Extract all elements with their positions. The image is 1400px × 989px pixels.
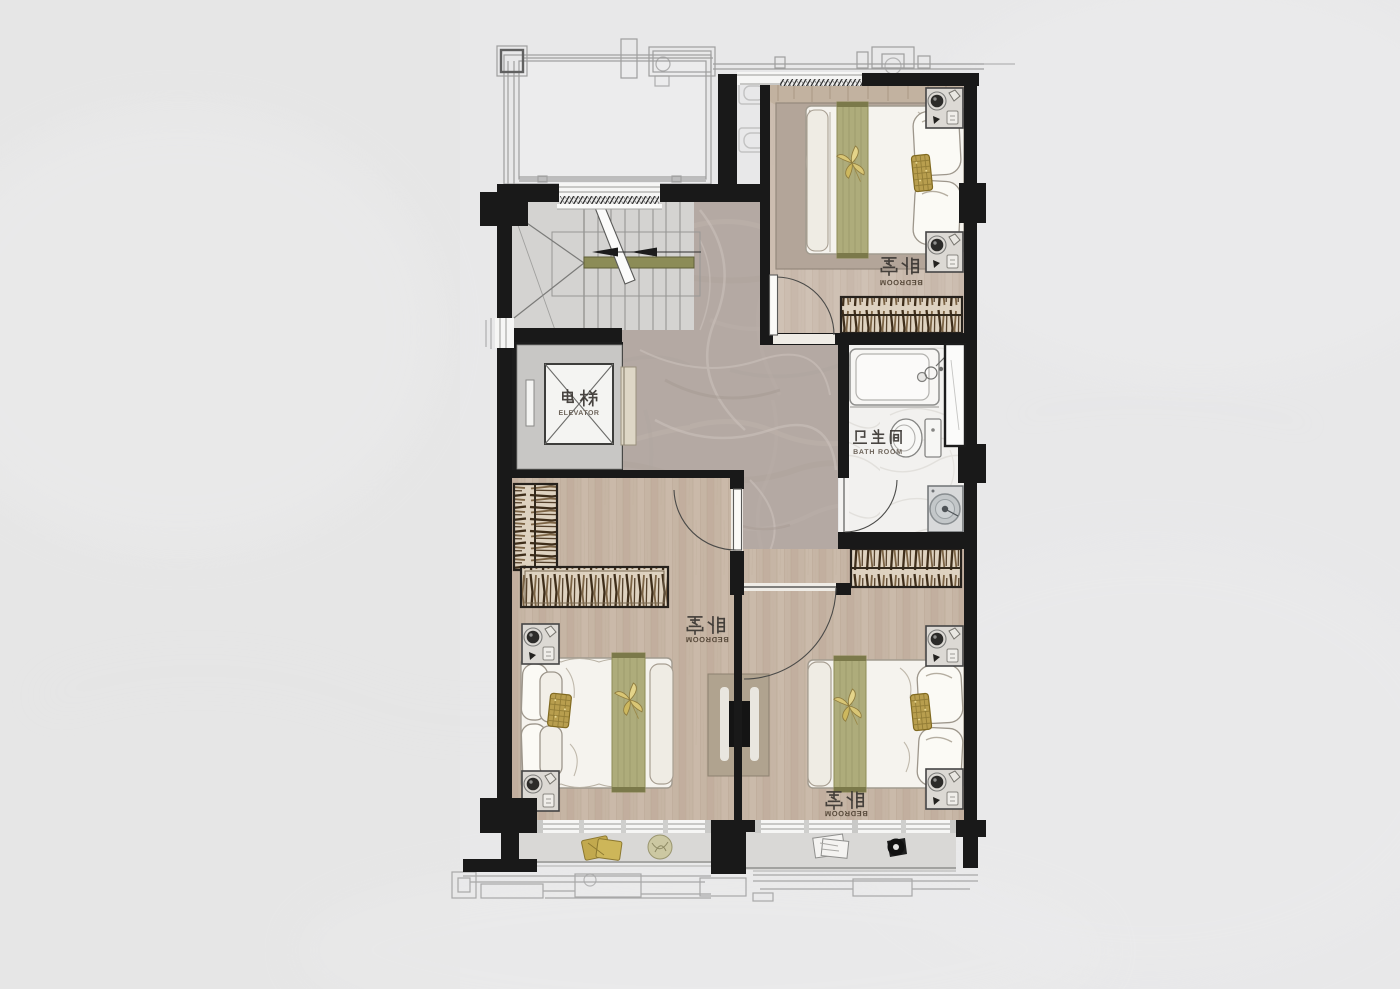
svg-text:BEDROOM: BEDROOM (879, 278, 922, 287)
svg-text:BEDROOM: BEDROOM (685, 635, 728, 644)
svg-text:BEDROOM: BEDROOM (824, 809, 867, 818)
svg-text:ELEVATOR: ELEVATOR (559, 410, 600, 417)
svg-text:BATH ROOM: BATH ROOM (853, 449, 903, 456)
